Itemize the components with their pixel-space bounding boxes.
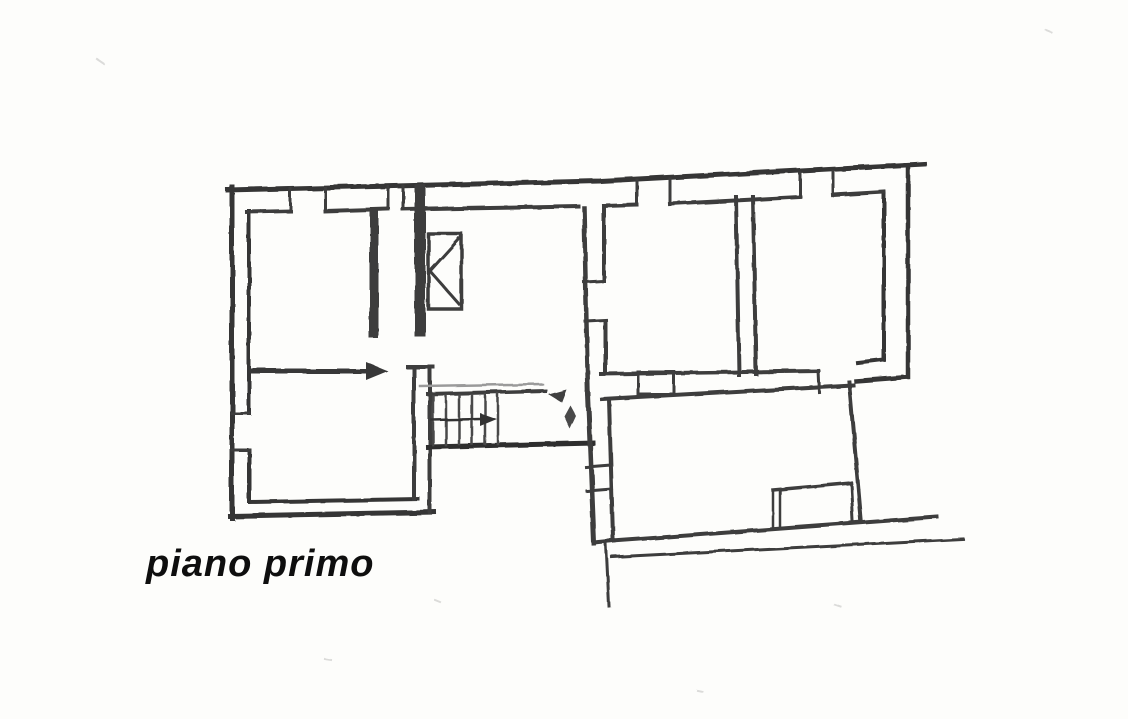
site-boundary-lines: [606, 517, 963, 606]
floor-caption: piano primo: [146, 543, 374, 586]
balcony-recess: [773, 483, 853, 528]
interior-walls-left-block: [374, 190, 606, 512]
right-wing-walls: [586, 197, 861, 543]
exterior-walls: [228, 164, 924, 518]
window-jambs: [232, 171, 833, 450]
flue-shaft-symbol: [429, 234, 462, 309]
corridor-bottom-wall: [602, 385, 853, 399]
landing-pen-marks: [548, 389, 576, 429]
wing-bottom-wall: [612, 517, 937, 541]
wall-with-arrow: [251, 362, 388, 380]
floorplan-drawing: [0, 0, 1128, 719]
entry-arrow-icon: [366, 362, 388, 380]
corridor-top-wall: [601, 371, 818, 374]
scanned-floorplan-page: piano primo: [0, 0, 1128, 719]
stair-direction-arrow-icon: [432, 413, 497, 426]
staircase: [420, 384, 593, 447]
top-inner-wall: [247, 192, 884, 212]
